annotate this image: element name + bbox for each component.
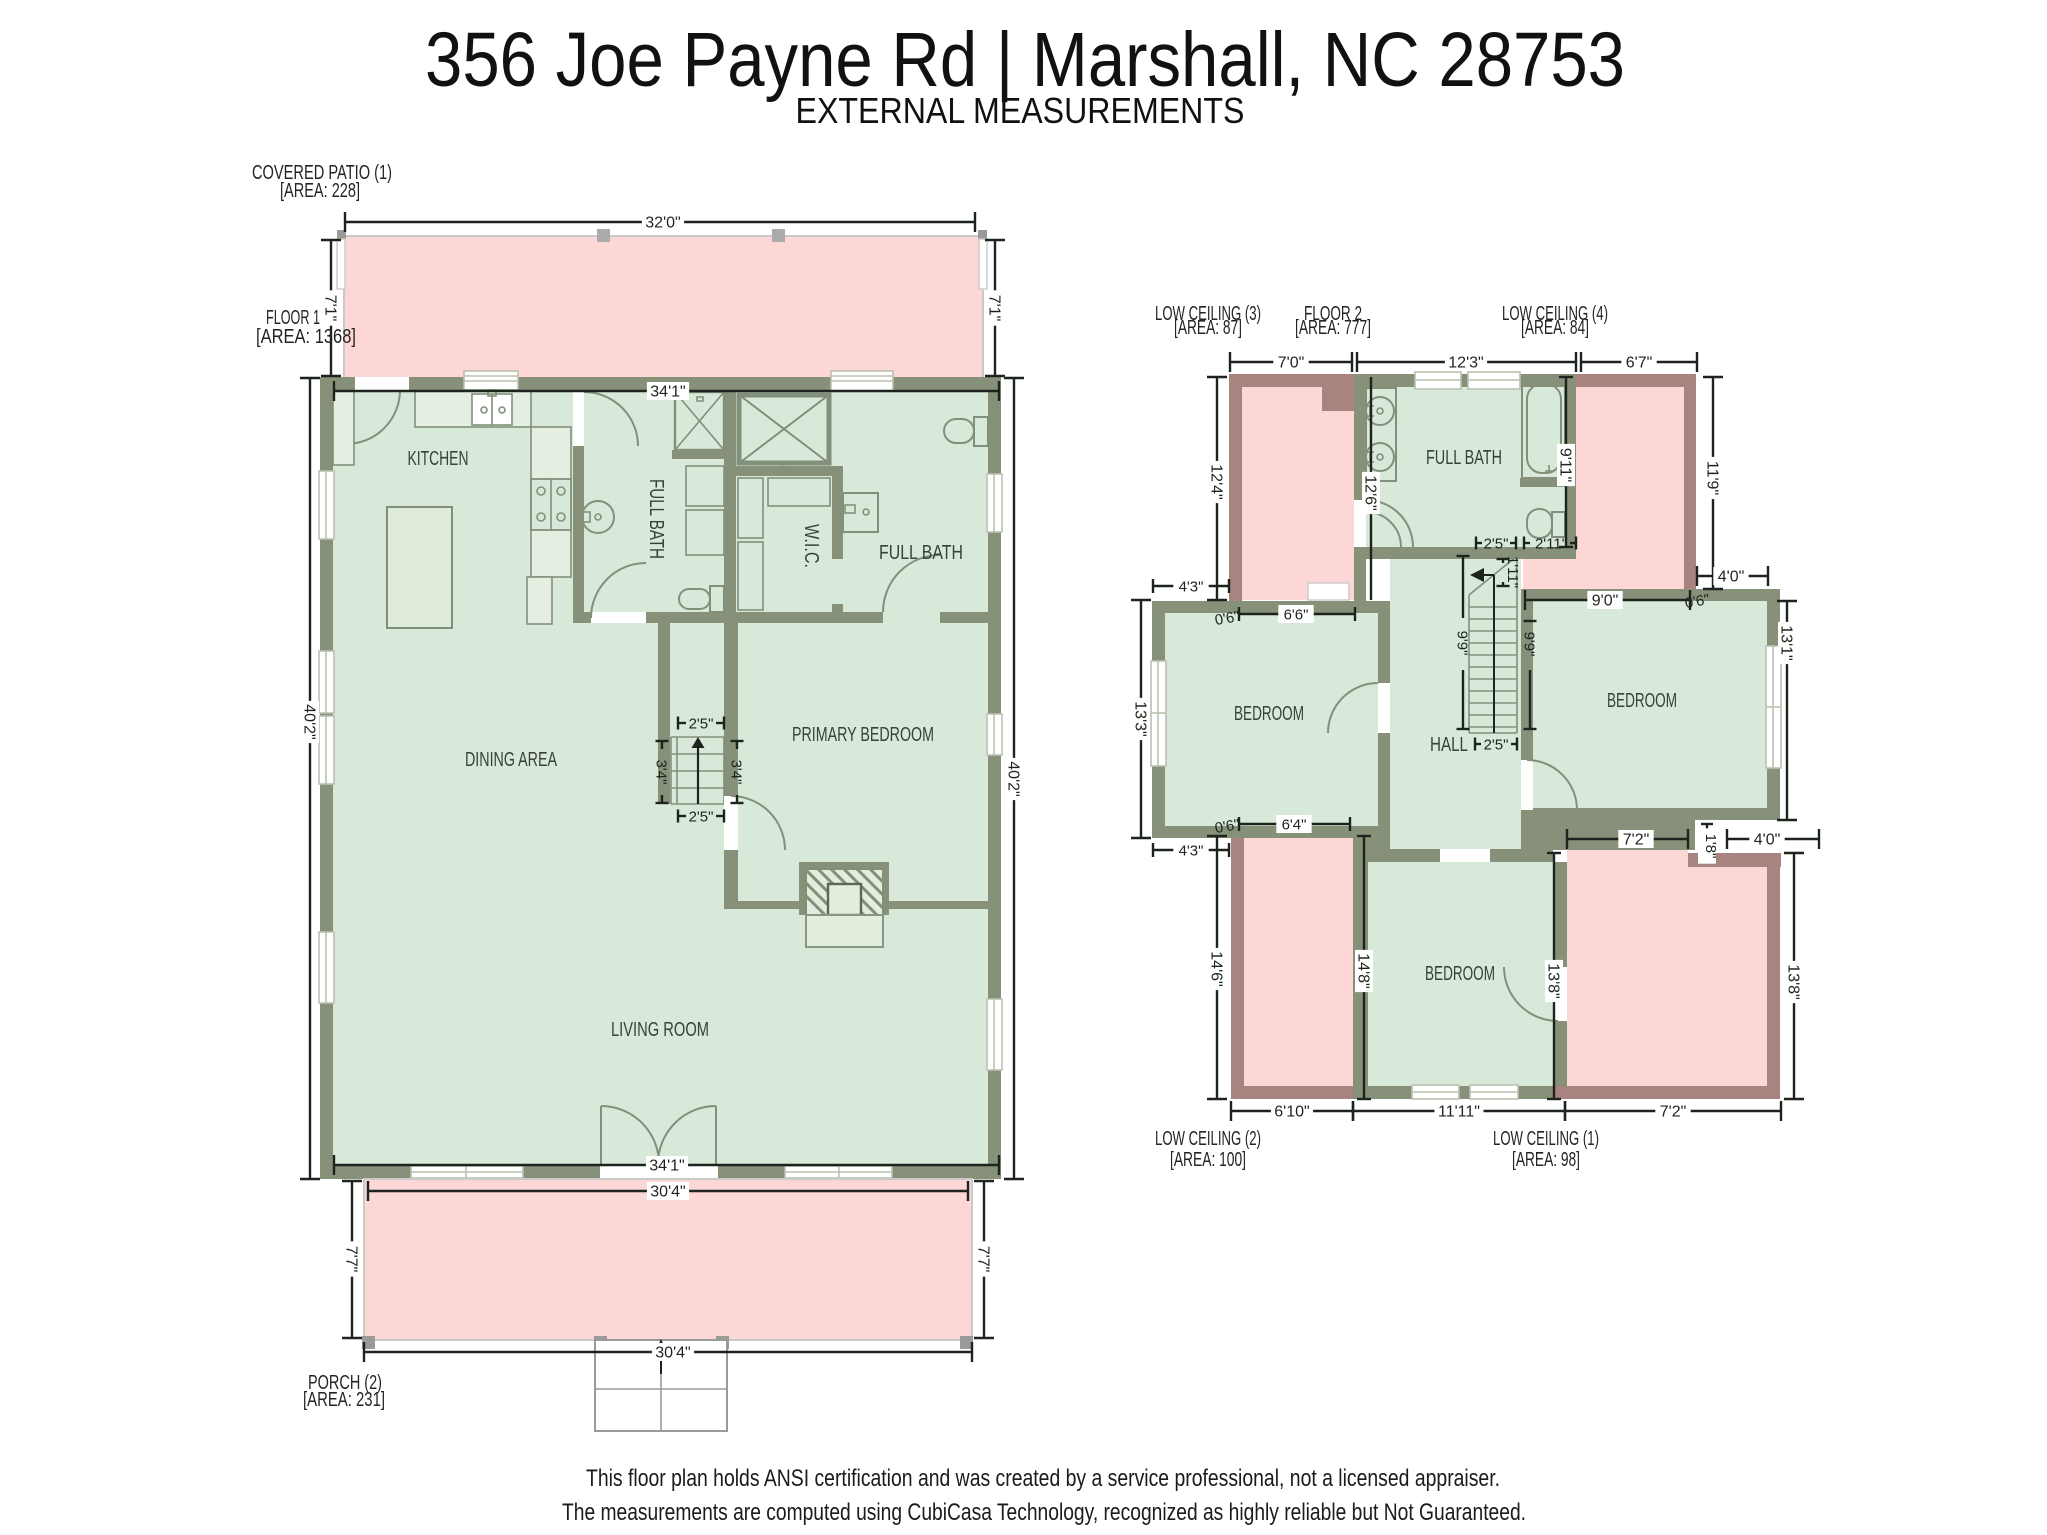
svg-text:BEDROOM: BEDROOM bbox=[1234, 703, 1304, 725]
svg-text:12'4": 12'4" bbox=[1208, 464, 1225, 499]
svg-text:DINING AREA: DINING AREA bbox=[465, 749, 557, 771]
svg-text:This floor plan holds ANSI cer: This floor plan holds ANSI certification… bbox=[586, 1465, 1500, 1492]
svg-text:LOW CEILING (2): LOW CEILING (2) bbox=[1155, 1128, 1261, 1150]
svg-text:4'0": 4'0" bbox=[1754, 832, 1781, 849]
svg-text:The measurements are computed: The measurements are computed using Cubi… bbox=[562, 1499, 1526, 1526]
svg-text:6'10": 6'10" bbox=[1274, 1104, 1309, 1121]
svg-text:[AREA: 84]: [AREA: 84] bbox=[1521, 317, 1589, 339]
svg-text:40'2": 40'2" bbox=[1005, 761, 1022, 796]
svg-text:30'4": 30'4" bbox=[655, 1345, 690, 1362]
svg-text:4'0": 4'0" bbox=[1718, 569, 1745, 586]
svg-text:7'7": 7'7" bbox=[343, 1246, 360, 1273]
svg-text:LOW CEILING (1): LOW CEILING (1) bbox=[1493, 1128, 1599, 1150]
svg-text:FULL BATH: FULL BATH bbox=[645, 479, 667, 559]
svg-text:4'3": 4'3" bbox=[1179, 579, 1204, 596]
svg-text:7'1": 7'1" bbox=[986, 295, 1003, 322]
svg-text:[AREA: 231]: [AREA: 231] bbox=[303, 1389, 385, 1411]
svg-text:EXTERNAL MEASUREMENTS: EXTERNAL MEASUREMENTS bbox=[796, 90, 1245, 131]
svg-text:[AREA: 777]: [AREA: 777] bbox=[1295, 317, 1371, 339]
svg-text:PRIMARY BEDROOM: PRIMARY BEDROOM bbox=[792, 724, 934, 746]
svg-text:2'5": 2'5" bbox=[1484, 737, 1509, 754]
svg-text:13'8": 13'8" bbox=[1785, 964, 1802, 999]
svg-text:[AREA: 98]: [AREA: 98] bbox=[1512, 1149, 1580, 1171]
svg-text:9'0": 9'0" bbox=[1592, 593, 1619, 610]
svg-text:HALL: HALL bbox=[1430, 734, 1468, 756]
svg-text:[AREA: 1368]: [AREA: 1368] bbox=[256, 326, 356, 348]
svg-text:14'6": 14'6" bbox=[1208, 951, 1225, 986]
svg-text:13'3": 13'3" bbox=[1132, 701, 1149, 736]
svg-text:7'2": 7'2" bbox=[1623, 832, 1650, 849]
svg-text:2'11": 2'11" bbox=[1535, 536, 1567, 553]
svg-text:34'1": 34'1" bbox=[650, 384, 685, 401]
svg-text:3'4": 3'4" bbox=[653, 760, 670, 785]
svg-text:13'1": 13'1" bbox=[1778, 625, 1795, 660]
svg-text:KITCHEN: KITCHEN bbox=[408, 448, 469, 470]
svg-text:14'8": 14'8" bbox=[1355, 953, 1372, 988]
svg-text:9'9": 9'9" bbox=[1454, 631, 1471, 656]
svg-text:[AREA: 87]: [AREA: 87] bbox=[1174, 317, 1242, 339]
svg-text:12'6": 12'6" bbox=[1362, 475, 1379, 510]
svg-text:FULL BATH: FULL BATH bbox=[879, 542, 963, 564]
svg-text:7'0": 7'0" bbox=[1278, 355, 1305, 372]
svg-text:13'8": 13'8" bbox=[1545, 963, 1562, 998]
svg-text:FULL BATH: FULL BATH bbox=[1426, 447, 1502, 469]
svg-text:7'1": 7'1" bbox=[322, 295, 339, 322]
svg-text:2'5": 2'5" bbox=[689, 809, 714, 826]
svg-text:6'6": 6'6" bbox=[1284, 607, 1309, 624]
svg-text:40'2": 40'2" bbox=[301, 704, 318, 739]
svg-text:9'9": 9'9" bbox=[1521, 632, 1538, 657]
svg-text:1'11": 1'11" bbox=[1504, 556, 1521, 588]
svg-text:1'8": 1'8" bbox=[1702, 834, 1719, 859]
svg-text:[AREA: 228]: [AREA: 228] bbox=[280, 180, 360, 202]
svg-text:6'7": 6'7" bbox=[1626, 355, 1653, 372]
svg-text:11'9": 11'9" bbox=[1704, 461, 1721, 495]
svg-text:3'4": 3'4" bbox=[728, 760, 745, 785]
svg-text:7'2": 7'2" bbox=[1660, 1104, 1687, 1121]
svg-text:6'4": 6'4" bbox=[1282, 817, 1307, 834]
svg-text:12'3": 12'3" bbox=[1448, 355, 1483, 372]
svg-text:2'5": 2'5" bbox=[1484, 536, 1509, 553]
svg-text:30'4": 30'4" bbox=[650, 1184, 685, 1201]
svg-text:W.I.C.: W.I.C. bbox=[800, 524, 822, 568]
svg-text:BEDROOM: BEDROOM bbox=[1607, 690, 1677, 712]
svg-text:11'11": 11'11" bbox=[1438, 1104, 1480, 1121]
svg-text:[AREA: 100]: [AREA: 100] bbox=[1170, 1149, 1246, 1171]
svg-text:9'11": 9'11" bbox=[1557, 448, 1574, 482]
svg-text:2'5": 2'5" bbox=[689, 716, 714, 733]
svg-text:32'0": 32'0" bbox=[645, 215, 680, 232]
svg-text:4'3": 4'3" bbox=[1179, 843, 1204, 860]
svg-text:34'1": 34'1" bbox=[649, 1158, 684, 1175]
svg-text:BEDROOM: BEDROOM bbox=[1425, 963, 1495, 985]
svg-text:7'7": 7'7" bbox=[975, 1246, 992, 1273]
svg-text:LIVING ROOM: LIVING ROOM bbox=[611, 1019, 709, 1041]
